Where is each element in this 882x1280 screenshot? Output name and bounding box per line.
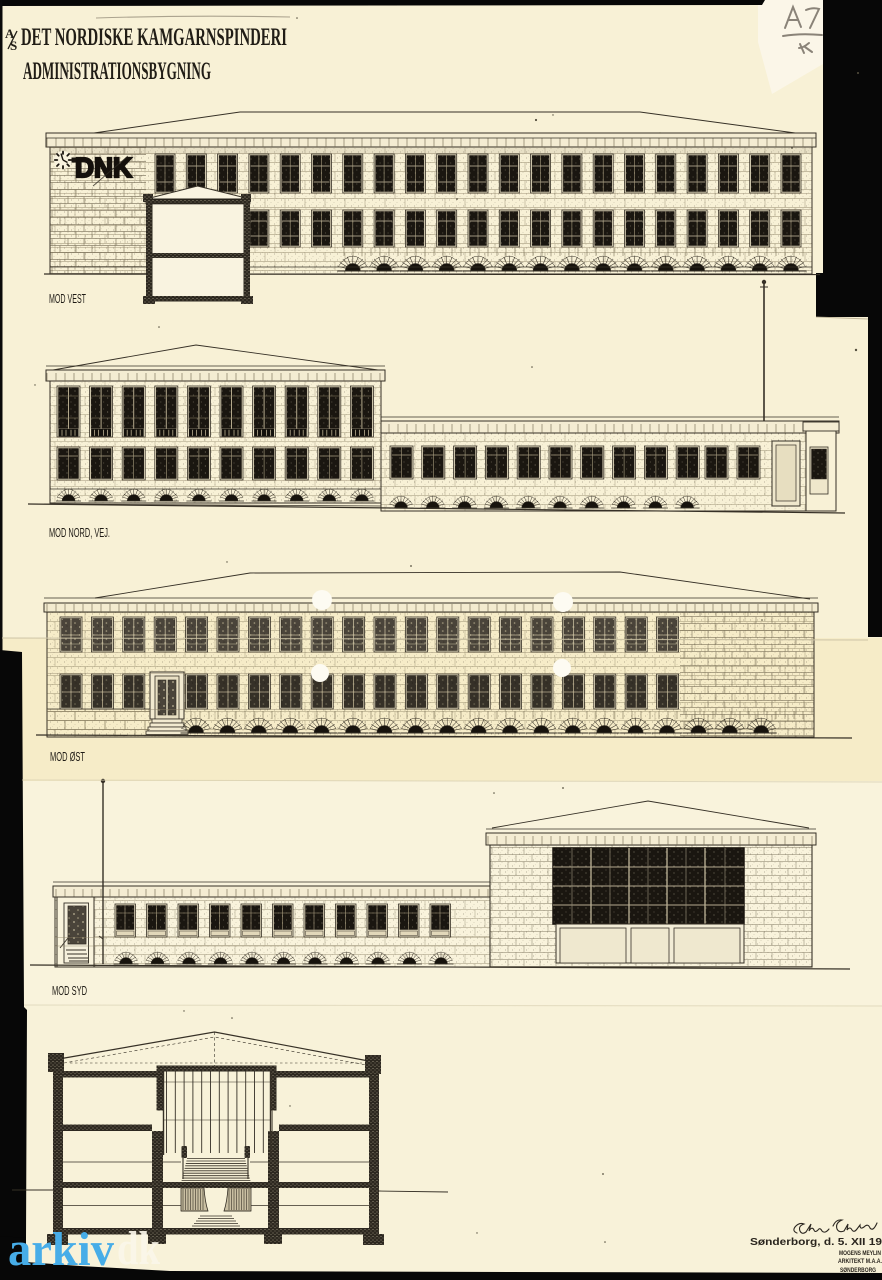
- svg-text:MOD ØST: MOD ØST: [50, 749, 85, 764]
- svg-text:DNK: DNK: [75, 152, 132, 183]
- svg-text:MOGENS MEYLIN: MOGENS MEYLIN: [839, 1250, 881, 1257]
- svg-text:ADMINISTRATIONSBYGNING: ADMINISTRATIONSBYGNING: [23, 58, 211, 85]
- svg-text:Sønderborg, d. 5. XII 19: Sønderborg, d. 5. XII 19: [750, 1237, 882, 1248]
- svg-text:ARKITEKT M.A.A.: ARKITEKT M.A.A.: [838, 1258, 882, 1265]
- svg-text:MOD NORD, VEJ.: MOD NORD, VEJ.: [49, 525, 110, 540]
- svg-text:MOD VEST: MOD VEST: [49, 291, 86, 306]
- svg-text:S: S: [10, 38, 17, 53]
- svg-text:dk: dk: [117, 1222, 160, 1275]
- svg-text:SØNDERBORG: SØNDERBORG: [840, 1267, 876, 1274]
- svg-text:arkiv: arkiv: [8, 1223, 114, 1276]
- svg-text:MOD SYD: MOD SYD: [52, 983, 87, 998]
- svg-text:DET NORDISKE KAMGARNSPINDERI: DET NORDISKE KAMGARNSPINDERI: [21, 24, 287, 51]
